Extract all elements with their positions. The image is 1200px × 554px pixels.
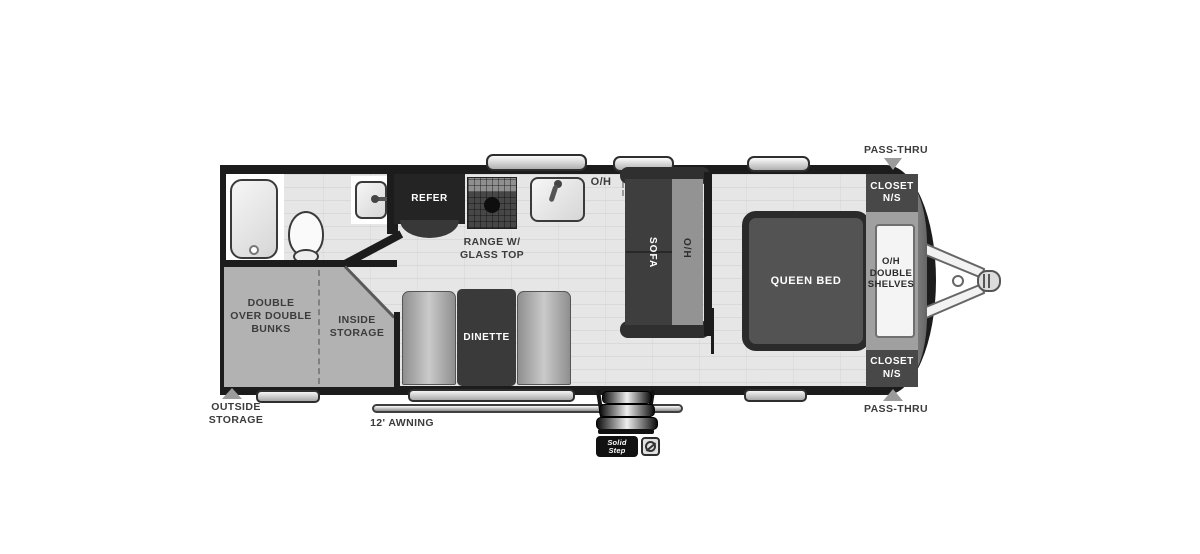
entry-step-base — [598, 429, 654, 434]
queen-bed: QUEEN BED — [742, 211, 870, 351]
window-bottom-bedroom — [744, 389, 807, 402]
dinette-table: DINETTE — [457, 289, 516, 386]
range-burner-icon — [484, 197, 500, 213]
bunks-label: DOUBLE OVER DOUBLE BUNKS — [226, 297, 316, 335]
window-top-bedroom — [747, 156, 810, 172]
closet-bottom: CLOSET N/S — [866, 350, 918, 387]
window-top-kitchen — [486, 154, 587, 171]
queen-bed-label: QUEEN BED — [771, 275, 842, 287]
floorplan-canvas: DOUBLE OVER DOUBLE BUNKS INSIDE STORAGE … — [0, 0, 1200, 554]
solid-step-badge: Solid Step — [596, 436, 638, 457]
dinette-bench-left — [402, 291, 456, 385]
closet-top: CLOSET N/S — [866, 174, 918, 212]
tub-drain-icon — [249, 245, 259, 255]
wall-bath-bottom — [224, 260, 397, 267]
oh-shelves-label: O/H DOUBLE SHELVES — [860, 256, 922, 291]
pass-thru-top-label: PASS-THRU — [854, 144, 938, 157]
pass-thru-bottom-label: PASS-THRU — [854, 403, 938, 416]
bedroom-door-line — [711, 308, 714, 354]
pass-thru-top-arrow-icon — [884, 158, 902, 170]
inside-storage-label: INSIDE STORAGE — [322, 314, 392, 340]
entry-step-2 — [599, 404, 655, 417]
solid-step-badge-label: Solid Step — [607, 439, 626, 454]
refer-label: REFER — [394, 174, 465, 224]
hitch-a-frame-icon — [918, 238, 1010, 324]
dinette-bench-right — [517, 291, 571, 385]
dinette-label: DINETTE — [463, 332, 509, 343]
certification-badge-icon — [641, 437, 660, 456]
bunks-storage-divider — [318, 270, 320, 384]
entry-step-1 — [602, 391, 652, 404]
wall-storage-dinette — [394, 312, 400, 388]
awning-label: 12' AWNING — [358, 417, 446, 430]
oh-kitchen-label: O/H — [584, 176, 618, 189]
oh-sofa-label: O/H — [676, 226, 692, 270]
bath-faucet-base-icon — [371, 195, 379, 203]
pass-thru-bottom-arrow-icon — [883, 389, 903, 401]
outside-storage-label: OUTSIDE STORAGE — [198, 401, 274, 427]
range-label: RANGE W/ GLASS TOP — [442, 236, 542, 262]
outside-storage-arrow-icon — [222, 388, 242, 399]
sofa-label: SOFA — [640, 214, 658, 292]
range-cooktop-icon — [467, 177, 517, 229]
window-bottom-dinette — [408, 389, 575, 402]
